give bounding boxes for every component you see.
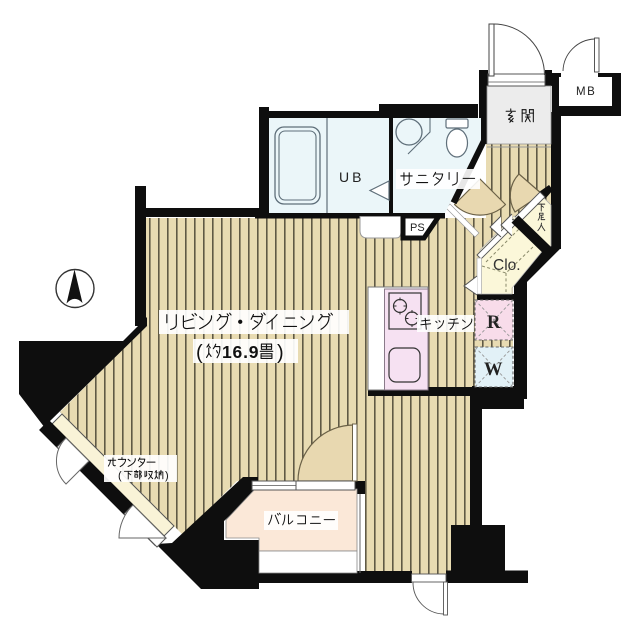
svg-text:MB: MB — [576, 86, 596, 98]
svg-text:PS: PS — [410, 222, 425, 234]
svg-text:UB: UB — [339, 169, 364, 185]
svg-text:W: W — [484, 360, 503, 380]
svg-text:): ) — [277, 342, 284, 364]
svg-text:(: ( — [196, 342, 203, 364]
svg-text:(: ( — [118, 470, 122, 482]
svg-text:Clo.: Clo. — [493, 257, 521, 274]
svg-text:): ) — [165, 470, 169, 482]
svg-text:R: R — [487, 313, 501, 333]
svg-text:16.9: 16.9 — [222, 342, 259, 362]
